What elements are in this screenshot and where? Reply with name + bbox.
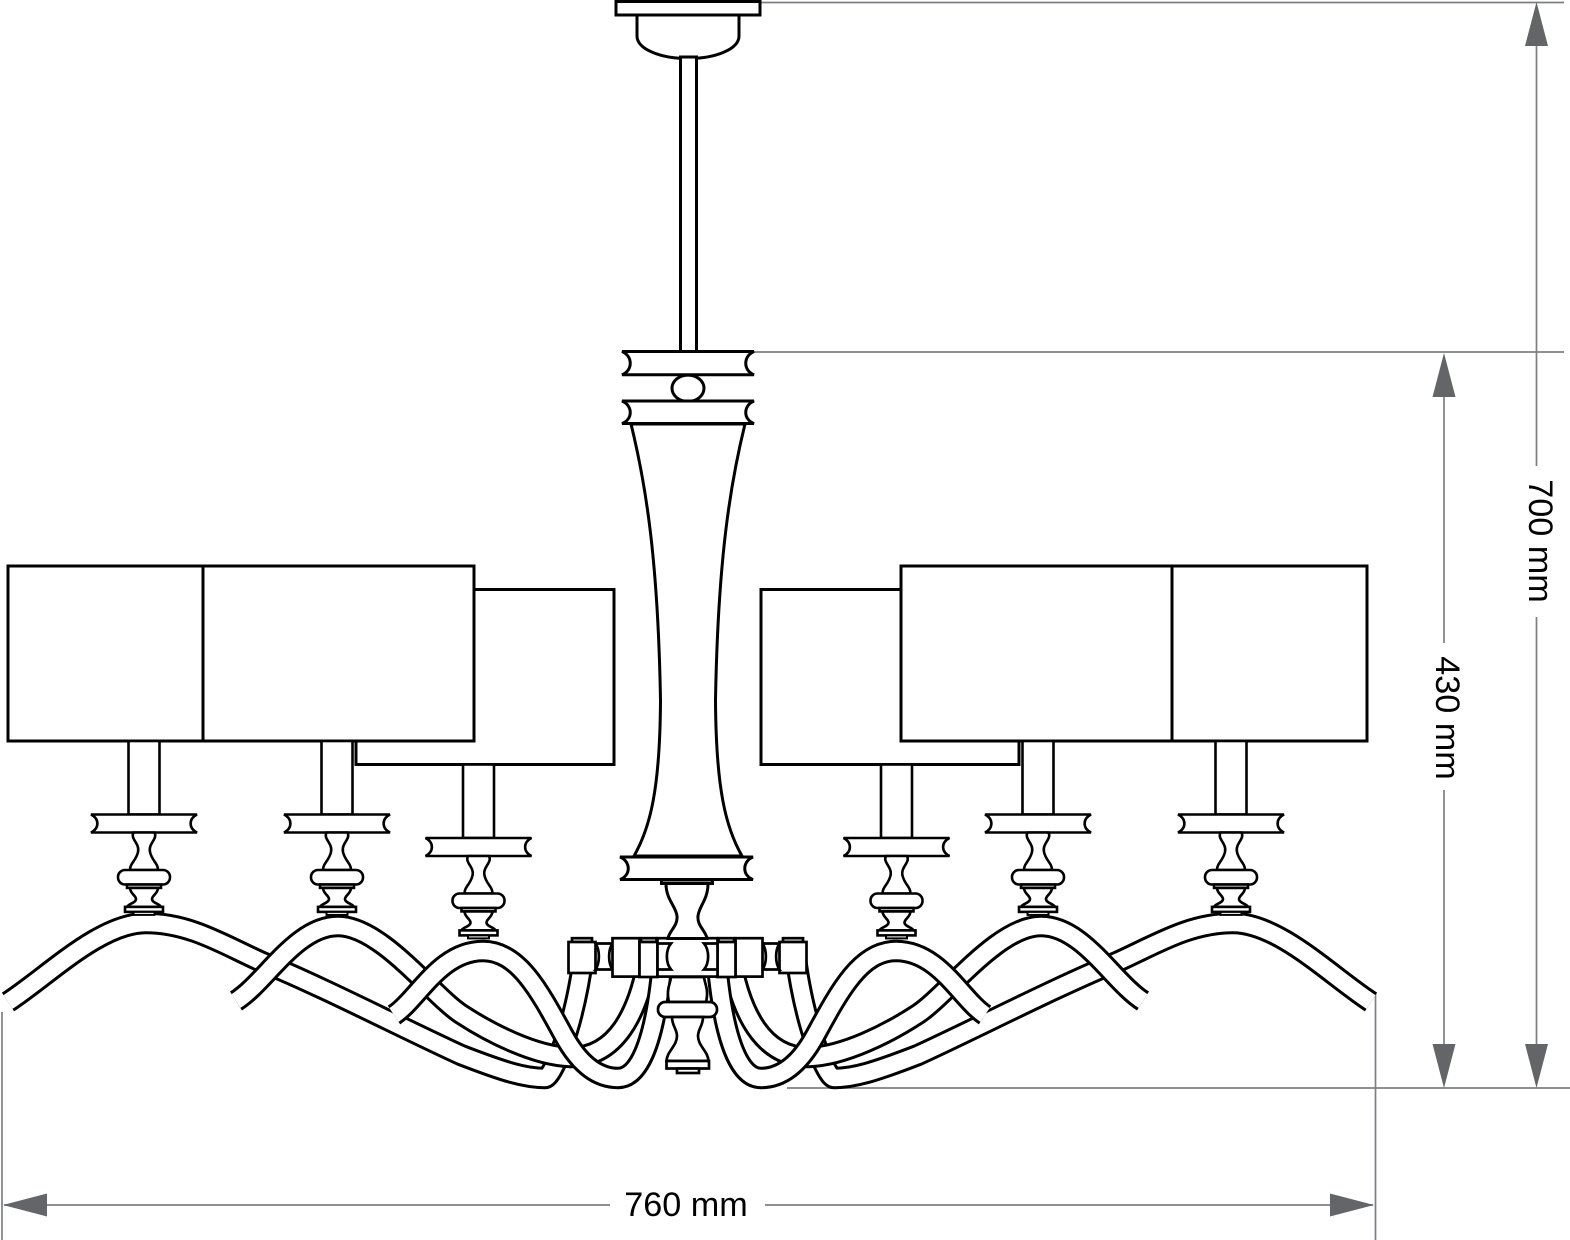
svg-text:760 mm: 760 mm [624,1186,748,1224]
svg-text:700 mm: 700 mm [1521,479,1559,603]
svg-text:430 mm: 430 mm [1428,656,1466,780]
